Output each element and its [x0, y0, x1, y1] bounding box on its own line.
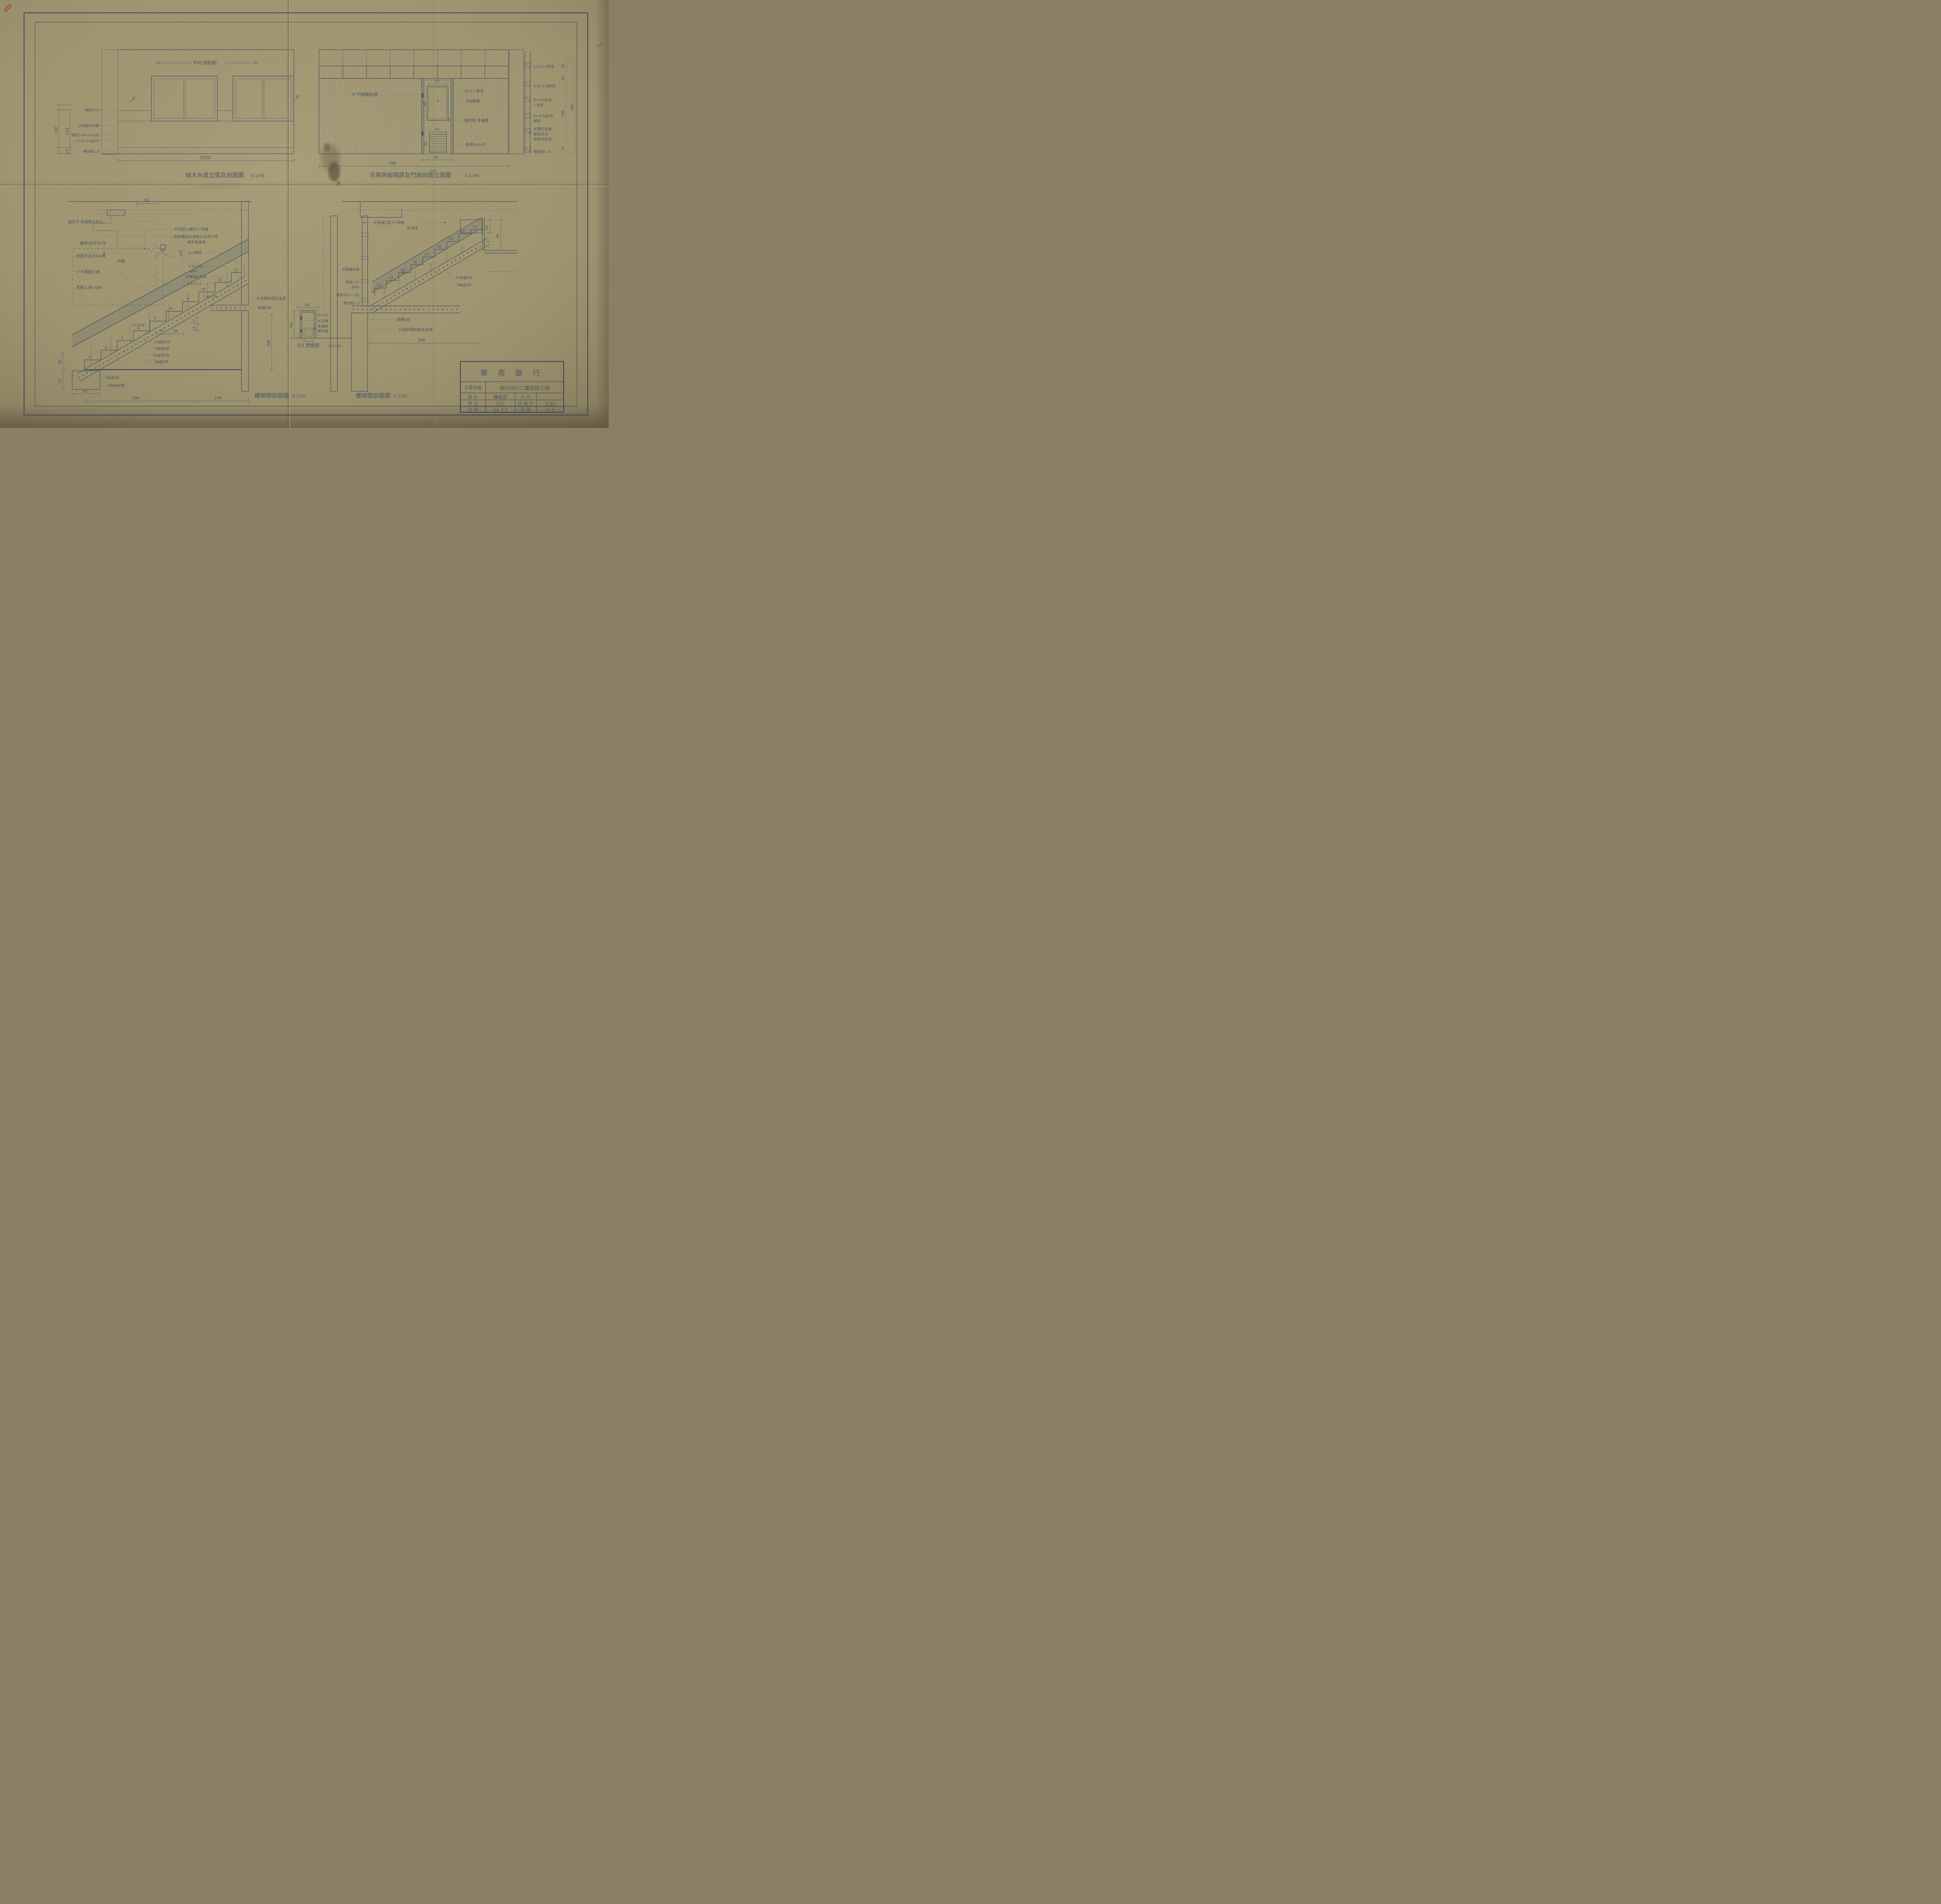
step-num: 10 [201, 288, 206, 292]
dwg-no-label: 圖 號 [521, 407, 531, 412]
note-ceiling-r2: 及油漆 [407, 226, 418, 231]
step-num: 4 [105, 346, 107, 350]
label-36x36-b: 3.6×3.6 [187, 282, 201, 286]
step-num: 11 [217, 278, 222, 282]
d3-label-9x45: 9×4.5 [318, 314, 328, 318]
note-tread-t12: t=12㎝ [132, 323, 144, 327]
step-num-r: 18 [437, 245, 441, 249]
step-num: 9 [186, 297, 189, 301]
dim-190: 190 [561, 110, 565, 117]
label-36x36-lauan: 3.6×3.6柳安 [533, 84, 556, 89]
step-num-r: 21 [473, 226, 477, 229]
rebar-12-10: 12φ@10 [154, 340, 170, 344]
label-9x45at45: 9×4.5@45 [533, 114, 553, 118]
design-value: 陳森堂 [493, 394, 507, 400]
step-num: 5 [121, 336, 123, 340]
dim-door-90: 90 [434, 156, 438, 160]
note-ceiling-r1: 天花缺口釘¼"夾板 [373, 221, 405, 225]
dim-26b: 26 [173, 329, 178, 333]
paper-fold-vertical-2 [432, 0, 436, 428]
note-terrazzo: 磨石子.兩端黑色滾边. [68, 220, 104, 224]
label-printply-3: 原有夾板同 [533, 137, 552, 142]
label-lauan36-3-r: 柳安3.6²一3支 [336, 293, 359, 297]
step-num-r: 17 [425, 253, 429, 257]
label-6pcs: 一6支 [533, 103, 543, 108]
dim-208-left: 208 [267, 339, 271, 347]
rebar-9-20-r: 9φ@20 [457, 283, 471, 287]
section-mark-right: 2 [296, 95, 299, 100]
label-printply-1: 天興印花夾 [533, 127, 552, 132]
note-bronze: 青銅上滑=100 [76, 285, 102, 290]
label-3mm-glass: 3㎜玻璃 [466, 99, 480, 104]
drawing3-title: 樓梯間剖面圖 [254, 392, 289, 399]
dim-louver-30: 30 [424, 142, 428, 146]
design-label: 設 計 [468, 394, 478, 400]
leader-dot-r2 [444, 222, 446, 223]
label-at45: @45 [189, 269, 197, 273]
d3-dim-60: 60 [305, 303, 310, 307]
label-lauan-board-16: 柳安板1.6 [533, 149, 550, 154]
rebar-9-20: 9φ@20 [155, 347, 169, 351]
label-12x45-lauan: 12×4.5柳安 [533, 64, 554, 69]
dim-90-rail: 90 [496, 234, 500, 238]
section-chief-label: 科 長 [521, 394, 531, 400]
label-12x5-lauan: 12×5 柳安 [464, 89, 484, 94]
dim-60: 60 [58, 360, 62, 364]
leader-dot-glass [437, 100, 438, 101]
note-ceiling-patch: 天花缺口補釘¼"夾板 [174, 227, 209, 232]
dim-115: 115 [65, 127, 69, 135]
label-36x36: 3.6×3.6 [189, 265, 203, 269]
note-acrylic-2: 双面 [117, 259, 125, 264]
dim-300: 300 [571, 103, 575, 110]
d3-hinge-bottom [300, 329, 302, 332]
label-lauan2: 柳安 [533, 119, 541, 123]
label-slats: 板條4.6×5 [466, 142, 486, 147]
label-cement-plaster-r: 水泥砂漿粉刷及油漆 [398, 327, 433, 332]
step-num-r: 16 [413, 261, 417, 264]
note-acrylic: 奇美压克力5㎜厚 [76, 254, 106, 259]
label-lauan-6x6: 柳安6×6 [85, 108, 99, 113]
d3-label-4cm: 4CM厚 [318, 319, 329, 323]
pvc-paint-note: PVC漆粉刷 [193, 60, 217, 66]
d3-label-lock: 喇叭鎖 [318, 329, 328, 334]
step-num-r: 14 [389, 276, 393, 280]
label-lock: 喇叭鎖 幸福牌 [464, 118, 489, 123]
dim-200: 200 [179, 250, 183, 256]
dim-glass-50: 50 [435, 80, 439, 83]
label-9x45-lauan: 9×4.5柳安 [533, 98, 552, 102]
label-at45-r: @45 [352, 285, 359, 289]
dim-90-top: 90 [144, 198, 149, 202]
paper-fold-horizontal [0, 183, 609, 188]
dim-3500: 3500 [200, 155, 211, 160]
project-value: 城內分行二樓改修工程 [499, 386, 550, 391]
scale-value: 1/30 [545, 401, 556, 407]
dim-208-right: 208 [418, 338, 425, 342]
d3-scale: S:1/30 [328, 344, 341, 348]
drawing4-scale: S:1/30 [393, 394, 407, 399]
label-teak-board-r: 天興柚木板 [342, 267, 359, 272]
label-printply-2: 板色彩与 [533, 132, 548, 137]
label-hinge: 4"不銹鋼鉸鏈 [352, 92, 378, 97]
dim-286: 286 [132, 396, 139, 400]
stain-dark [328, 162, 340, 181]
step-num-r: 15 [401, 268, 405, 272]
leader-dot-r1 [363, 222, 365, 223]
dim-40: 40 [83, 390, 88, 394]
label-lauan-36x36: 柳安3.6×3.6-3支 [71, 133, 99, 137]
rebar-16-4: 16φ@4支 [107, 383, 125, 388]
drawing2-scale: S:1/30 [465, 173, 479, 178]
d3-hinge-top [300, 316, 302, 320]
dim-15r: 15 [561, 146, 565, 151]
drawing3-scale: S:1/30 [292, 394, 306, 399]
project-label: 工程名稱 [464, 385, 481, 390]
dim-15: 15 [66, 149, 69, 153]
label-lauan-at45: 〃3.6×3.6@45 [74, 139, 99, 143]
step-num-r: 13 [377, 284, 381, 288]
paper-right-shadow [595, 0, 609, 428]
d3-dim-160: 160 [290, 322, 293, 328]
note-demolish-2: 補平並油漆 [187, 240, 206, 245]
step-num-r: 20 [461, 229, 465, 233]
dim-10: 10 [58, 379, 62, 383]
dim-50: 50 [561, 76, 565, 80]
paper-bottom-shadow [0, 405, 609, 428]
label-6x6-lauan: 6×6柳安 [188, 250, 202, 255]
label-brick-1B: 砌磚1B. [397, 317, 411, 322]
label-16x15: 1.6×15 [203, 295, 216, 299]
step-num: 12 [234, 268, 238, 272]
bank-name: 華 南 銀 行 [480, 369, 544, 377]
dwg-no-value: A-3 [546, 407, 554, 413]
date-label: 日 期 [468, 407, 478, 412]
drawing1-title: 柚木台度立面及剖面圖 [186, 172, 244, 179]
rebar-12-10-r: 12φ@10 [456, 276, 472, 280]
blueprint-page: PVC漆粉刷 2 2 柳安6×6 天興柚木夾板 柳安3.6×3.6-3支 〃3.… [0, 0, 609, 428]
unit-value: 公分 [496, 401, 505, 407]
drawing1-scale: S:1/30 [251, 173, 264, 178]
d3-label-brand: 幸福牌 [318, 324, 328, 329]
label-cement-paint: 水泥漿粉刷及油漆 [256, 296, 286, 301]
note-sq-tube: 1"不銹鋼方管 [76, 269, 100, 274]
unit-label: 單 位 [468, 401, 478, 406]
door-hinge-top [422, 93, 424, 97]
note-handrail: 柚木扶手9×5 [80, 240, 106, 246]
section-mark-left: 2 [132, 96, 135, 101]
dim-17: 17 [193, 319, 196, 323]
dim-louver-50: 50 [435, 128, 439, 132]
blueprint-svg: PVC漆粉刷 2 2 柳安6×6 天興柚木夾板 柳安3.6×3.6-3支 〃3.… [0, 0, 609, 428]
crease-smudge [194, 183, 241, 188]
dim-12: 12 [193, 326, 196, 330]
stain-dot [337, 181, 340, 186]
scale-label: 比 例 尺 [518, 401, 533, 406]
dim-130: 130 [54, 127, 58, 134]
dim-26a: 26 [159, 329, 164, 333]
leader-dot-2 [103, 252, 105, 254]
label-teak-plywood: 天興柚木夾板 [78, 123, 99, 128]
label-lauan16-r: 柳安板1.6 [344, 301, 360, 306]
date-value: 64.7.7 [493, 407, 508, 413]
paper-fold-vertical [286, 0, 292, 428]
label-brick-halfB: 砌磚½B [258, 306, 271, 310]
rebar-9-20b: 9φ@20 [155, 360, 168, 364]
label-lauan-board: 柳安板1.6 [83, 149, 100, 154]
rebar-12-10b: 12φ@10 [153, 353, 169, 358]
d3-title: D3 立面圖 [297, 342, 319, 348]
step-num-r: 19 [449, 237, 453, 241]
label-lauan36-r: 柳安3.6² [345, 280, 359, 285]
dim-45: 45 [561, 63, 565, 68]
drawing2-title: 天興夾板隔屏及門扇剖面立面圖 [370, 172, 451, 179]
step-num: 3 [89, 356, 91, 360]
drawing4-title: 樓梯間剖面圖 [356, 392, 391, 399]
step-num: 7 [154, 317, 156, 321]
dim-700: 700 [388, 161, 396, 166]
step-num: 8 [170, 307, 172, 311]
note-demolish-1: 拆除楼板及墙面以水泥沙浆 [174, 235, 219, 239]
plywood-grain-left [320, 79, 421, 153]
dim-glass-90: 90 [423, 102, 427, 106]
label-teak-ply: 天興柚木夾板 [186, 274, 207, 279]
dim-140: 140 [214, 396, 222, 400]
rebar-9-30: 9φ@30 [106, 376, 120, 380]
dim-30-mesh: 30 [485, 225, 489, 230]
door-hinge-bottom [422, 131, 424, 136]
